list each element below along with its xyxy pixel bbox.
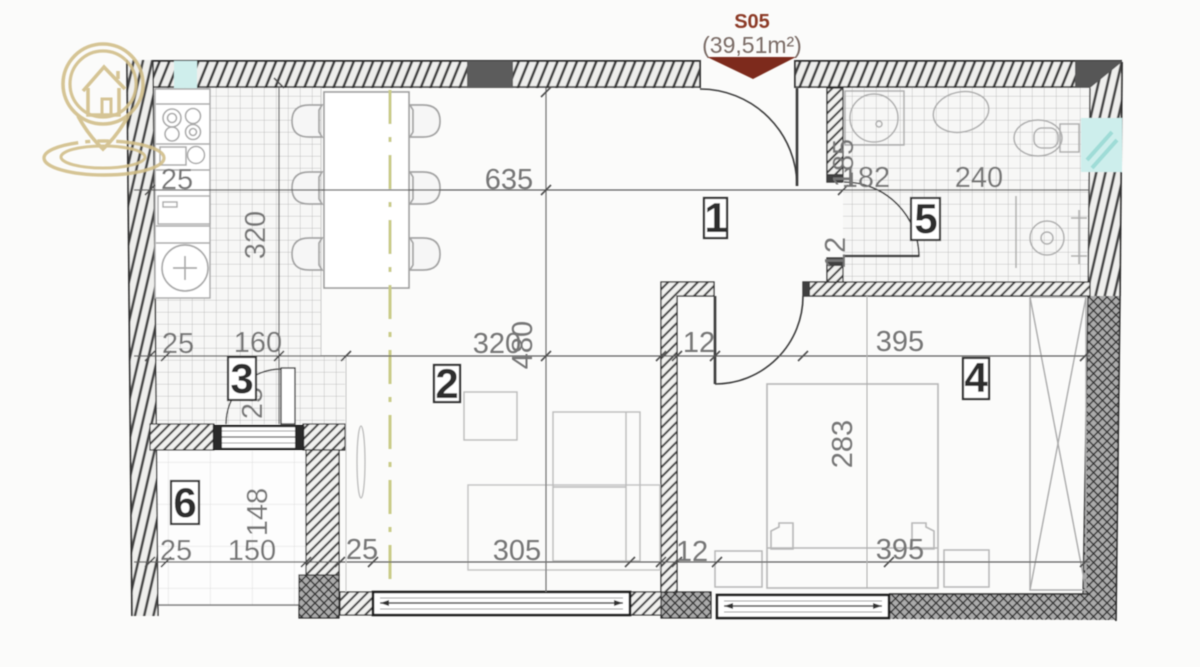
svg-text:283: 283 [827,420,859,468]
svg-text:5: 5 [914,195,937,242]
svg-text:148: 148 [242,488,274,536]
svg-text:395: 395 [876,534,924,566]
svg-text:2: 2 [435,360,458,407]
svg-text:(39,51m²): (39,51m²) [702,32,802,58]
svg-text:3: 3 [230,355,253,402]
svg-text:480: 480 [507,321,539,369]
svg-text:185: 185 [828,139,860,187]
svg-text:395: 395 [876,326,924,358]
svg-text:25: 25 [161,164,193,196]
svg-text:25: 25 [160,535,192,567]
svg-text:25: 25 [346,534,378,566]
svg-text:305: 305 [493,535,541,567]
svg-text:4: 4 [964,354,988,401]
svg-text:6: 6 [173,479,196,526]
svg-text:S05: S05 [734,11,770,33]
svg-text:635: 635 [485,164,533,196]
svg-text:320: 320 [240,211,272,259]
svg-text:12: 12 [820,237,852,269]
svg-text:150: 150 [228,535,276,567]
svg-text:12: 12 [676,536,708,568]
svg-text:1: 1 [704,194,727,241]
svg-text:12: 12 [683,327,715,359]
svg-text:240: 240 [955,162,1003,194]
svg-text:25: 25 [162,328,194,360]
